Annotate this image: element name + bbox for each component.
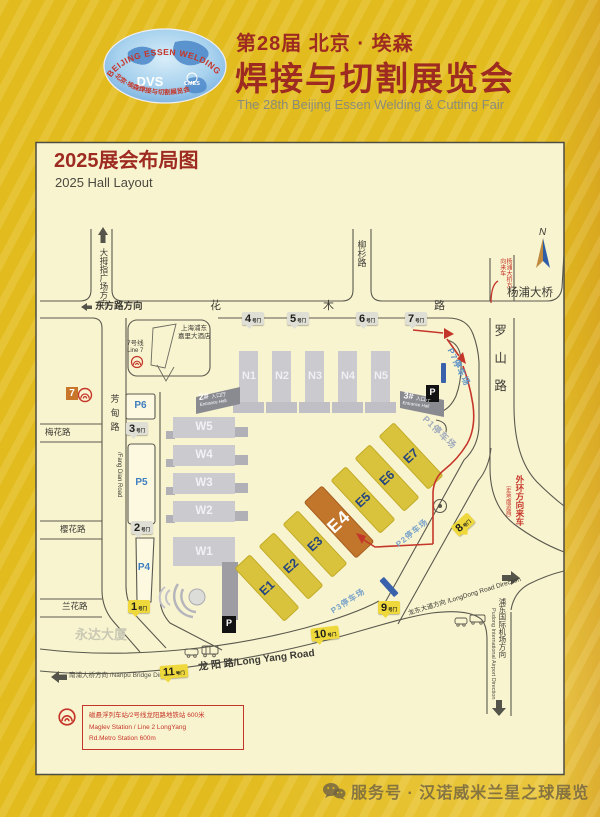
gate-number: 4 (245, 313, 251, 325)
hotel-name-line2: 嘉里大酒店 (178, 333, 211, 340)
gate-number: 7 (408, 313, 414, 325)
gate-suffix: 号门 (141, 527, 150, 533)
gate-7: 7号门 (405, 312, 427, 325)
poster-page: { "header": { "logo": { "arc_top": "BEIJ… (0, 0, 600, 817)
gate-number: 6 (359, 313, 365, 325)
gate-suffix: 号门 (415, 318, 424, 324)
hall-e4-label: E4 (323, 506, 355, 538)
hall-e3-label: E3 (305, 534, 326, 555)
footer: 服务号 · 汉诺威米兰星之球展览 (322, 779, 589, 803)
gate-number: 1 (131, 601, 137, 613)
service-account-label: 服务号 · 汉诺威米兰星之球展览 (351, 779, 589, 803)
compass-label: N (539, 227, 546, 239)
gate-5: 5号门 (287, 312, 309, 325)
hall-w5-label: W5 (173, 421, 235, 433)
gate-number: 3 (129, 423, 135, 435)
gate-suffix: 号门 (297, 318, 306, 324)
gate-8: 8号门 (450, 512, 475, 536)
parking-p5-label: P5 (128, 477, 155, 488)
gate-suffix: 号门 (136, 428, 145, 434)
line7-badge: 7 (66, 387, 78, 400)
road-airport-en: Pudong International Airport Direction (490, 608, 496, 699)
map-title-cn: 2025展会布局图 (54, 150, 199, 173)
map-title-en: 2025 Hall Layout (55, 176, 153, 191)
hall-n3-label: N3 (305, 370, 325, 382)
gate-number: 9 (381, 602, 387, 614)
parking-icon-p: P (426, 386, 439, 399)
maglev-note-box: 磁悬浮列车站/2号线龙阳路地铁站 600米 Maglev Station / L… (82, 705, 244, 750)
line7-label-en: Line 7 (127, 348, 143, 355)
gate-3: 3号门 (126, 422, 148, 435)
parking-p3-label: P3停车场 (329, 586, 368, 616)
gate-number: 11 (163, 666, 175, 679)
parking-p2-label: P2停车场 (394, 516, 431, 549)
road-huamu-2: 木 (323, 300, 334, 313)
gate-number: 2 (134, 522, 140, 534)
hall-w4-label: W4 (173, 449, 235, 461)
note-yangpu-incoming: 杨浦大桥方向来车 (495, 258, 511, 288)
note-waihuan: 外环方向来车 (515, 475, 524, 533)
road-liushan: 柳杉路 (356, 240, 365, 290)
hall-n2-label: N2 (272, 370, 292, 382)
maglev-note-line3: Rd.Metro Station 600m (89, 733, 237, 745)
entrance-2-label: 2# 入口厅 Entrance Hall (198, 389, 227, 408)
gate-1: 1号门 (128, 600, 150, 613)
parking-p7-label: P7停车场 (445, 346, 474, 388)
road-yinghua: 樱花路 (60, 525, 86, 535)
hall-w2-label: W2 (173, 505, 235, 517)
map-labels: 2025展会布局图 2025 Hall Layout N 大拇指广场方向 东方路… (0, 0, 600, 817)
gate-number: 10 (313, 628, 327, 641)
gate-suffix: 号门 (388, 607, 397, 613)
road-huamu-3: 路 (434, 300, 445, 313)
gate-4: 4号门 (242, 312, 264, 325)
maglev-note-line2: Maglev Station / Line 2 LongYang (89, 722, 237, 734)
hall-n1-label: N1 (239, 370, 259, 382)
hotel-name-line1: 上海浦东 (181, 325, 207, 332)
maglev-note-line1: 磁悬浮列车站/2号线龙阳路地铁站 600米 (89, 710, 237, 722)
line7-label-cn: 7号线 (127, 340, 144, 347)
gate-2: 2号门 (131, 521, 153, 534)
gate-suffix: 号门 (252, 318, 261, 324)
parking-p4-label: P4 (133, 562, 155, 573)
parking-icon-p: P (222, 617, 236, 630)
road-fangdian-en: /Fang Dian Road (115, 452, 122, 497)
gate-suffix: 号门 (176, 670, 185, 677)
hall-w1-label: W1 (173, 546, 235, 558)
parking-p6-label: P6 (126, 400, 155, 411)
road-dongfang: 东方路方向 (95, 302, 143, 313)
hall-e2-label: E2 (281, 556, 302, 577)
road-luoshan: 罗山路 (492, 324, 505, 416)
parking-p1-label: P1停车场 (420, 412, 460, 451)
gate-suffix: 号门 (327, 632, 337, 639)
road-meihua: 梅花路 (45, 428, 71, 438)
road-longyang: 龙 阳 路/Long Yang Road (198, 648, 316, 674)
gate-9: 9号门 (378, 601, 400, 614)
road-fangdian-cn: 芳甸路 (109, 394, 118, 448)
hall-e5-label: E5 (353, 490, 374, 511)
road-airport-cn: 浦东国际机场方向 (498, 598, 506, 664)
road-huamu-1: 花 (210, 300, 221, 313)
gate-suffix: 号门 (366, 318, 375, 324)
hall-e1-label: E1 (257, 578, 278, 599)
road-yangpu-bridge: 杨浦大桥 (507, 287, 553, 300)
building-yongda: 永达大厦 (75, 628, 127, 643)
gate-6: 6号门 (356, 312, 378, 325)
note-waihuan-sub: （走地面道路） (504, 482, 510, 534)
road-lanhua: 兰花路 (62, 602, 88, 612)
hall-w3-label: W3 (173, 477, 235, 489)
hall-e6-label: E6 (377, 468, 398, 489)
wechat-icon (322, 782, 346, 800)
gate-10: 10号门 (310, 625, 340, 641)
hall-n5-label: N5 (371, 370, 391, 382)
gate-number: 5 (290, 313, 296, 325)
gate-suffix: 号门 (138, 606, 147, 612)
hall-n4-label: N4 (338, 370, 358, 382)
hall-e7-label: E7 (401, 446, 422, 467)
gate-11: 11号门 (160, 664, 188, 679)
